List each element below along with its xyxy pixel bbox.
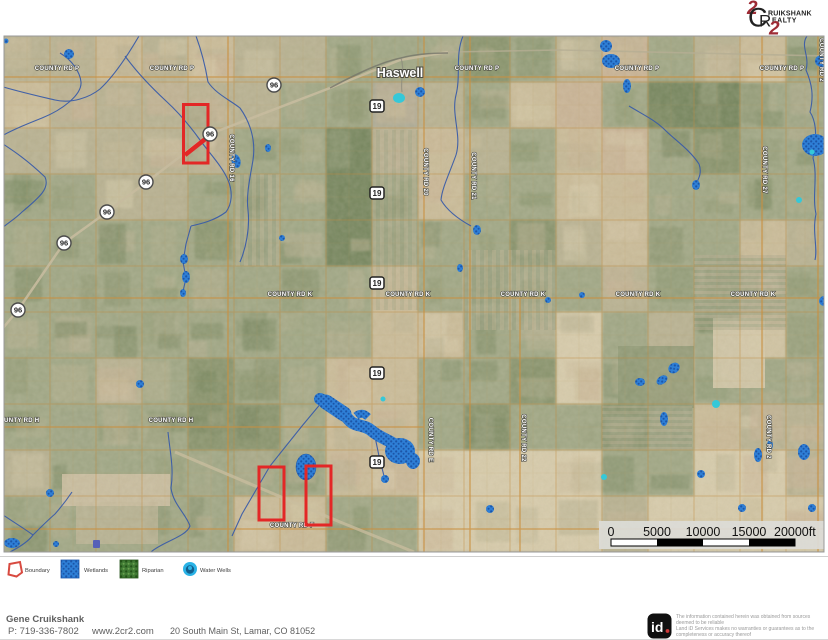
svg-text:19: 19 bbox=[373, 189, 382, 198]
svg-text:COUNTY RD K: COUNTY RD K bbox=[731, 292, 776, 298]
svg-text:20 South Main St, Lamar, CO 81: 20 South Main St, Lamar, CO 81052 bbox=[170, 626, 315, 636]
svg-text:5000: 5000 bbox=[643, 525, 671, 539]
svg-text:COUNTY RD P: COUNTY RD P bbox=[615, 66, 660, 72]
svg-text:COUNTY RD K: COUNTY RD K bbox=[268, 292, 313, 298]
svg-text:P: 719-336-7802: P: 719-336-7802 bbox=[8, 626, 79, 637]
svg-text:Riparian: Riparian bbox=[142, 568, 164, 574]
svg-text:COUNTY RD H: COUNTY RD H bbox=[149, 418, 194, 424]
svg-text:19: 19 bbox=[373, 102, 382, 111]
svg-text:0: 0 bbox=[608, 525, 615, 539]
svg-text:96: 96 bbox=[270, 81, 278, 90]
svg-text:Water Wells: Water Wells bbox=[200, 568, 231, 574]
svg-text:19: 19 bbox=[373, 279, 382, 288]
svg-text:COUNTY RD 2: COUNTY RD 2 bbox=[765, 415, 771, 459]
svg-text:Haswell: Haswell bbox=[377, 66, 424, 80]
svg-text:COUNTY RD K: COUNTY RD K bbox=[501, 292, 546, 298]
svg-text:10000: 10000 bbox=[686, 525, 721, 539]
svg-text:19: 19 bbox=[373, 369, 382, 378]
svg-text:96: 96 bbox=[206, 130, 214, 139]
svg-text:COUNTY RD 20: COUNTY RD 20 bbox=[422, 148, 428, 196]
svg-text:COUNTY RD P: COUNTY RD P bbox=[150, 66, 195, 72]
svg-text:COUNTY RD K: COUNTY RD K bbox=[616, 292, 661, 298]
svg-text:2: 2 bbox=[768, 19, 780, 40]
svg-text:Wetlands: Wetlands bbox=[84, 568, 108, 574]
svg-text:COUNTY RD 2: COUNTY RD 2 bbox=[818, 38, 824, 82]
svg-text:20000ft: 20000ft bbox=[774, 525, 816, 539]
svg-text:COUNTY RD K: COUNTY RD K bbox=[386, 292, 431, 298]
svg-text:COUNTY RD P: COUNTY RD P bbox=[455, 66, 500, 72]
svg-text:Boundary: Boundary bbox=[25, 568, 50, 574]
svg-text:COUNTY RD P: COUNTY RD P bbox=[760, 66, 805, 72]
svg-text:COUNTY RD 27: COUNTY RD 27 bbox=[761, 146, 767, 194]
svg-text:www.2cr2.com: www.2cr2.com bbox=[91, 626, 154, 637]
svg-text:id: id bbox=[651, 619, 663, 635]
svg-text:Gene Cruikshank: Gene Cruikshank bbox=[6, 614, 85, 625]
svg-text:completeness or accuracy there: completeness or accuracy thereof bbox=[676, 632, 752, 638]
svg-text:RUIKSHANK: RUIKSHANK bbox=[768, 11, 812, 18]
svg-text:COUNTY RD E: COUNTY RD E bbox=[427, 418, 433, 463]
svg-text:COUNTY RD 21: COUNTY RD 21 bbox=[470, 152, 476, 200]
svg-text:19: 19 bbox=[373, 458, 382, 467]
svg-text:COUNTY RD P: COUNTY RD P bbox=[35, 66, 80, 72]
svg-text:96: 96 bbox=[60, 239, 68, 248]
svg-text:96: 96 bbox=[14, 306, 22, 315]
svg-text:96: 96 bbox=[103, 208, 111, 217]
svg-text:COUNTY RD 22: COUNTY RD 22 bbox=[520, 414, 526, 462]
svg-text:96: 96 bbox=[142, 178, 150, 187]
svg-text:15000: 15000 bbox=[732, 525, 767, 539]
svg-text:COUNTY RD H: COUNTY RD H bbox=[0, 418, 39, 424]
svg-text:COUNTY RD 16: COUNTY RD 16 bbox=[228, 134, 234, 182]
